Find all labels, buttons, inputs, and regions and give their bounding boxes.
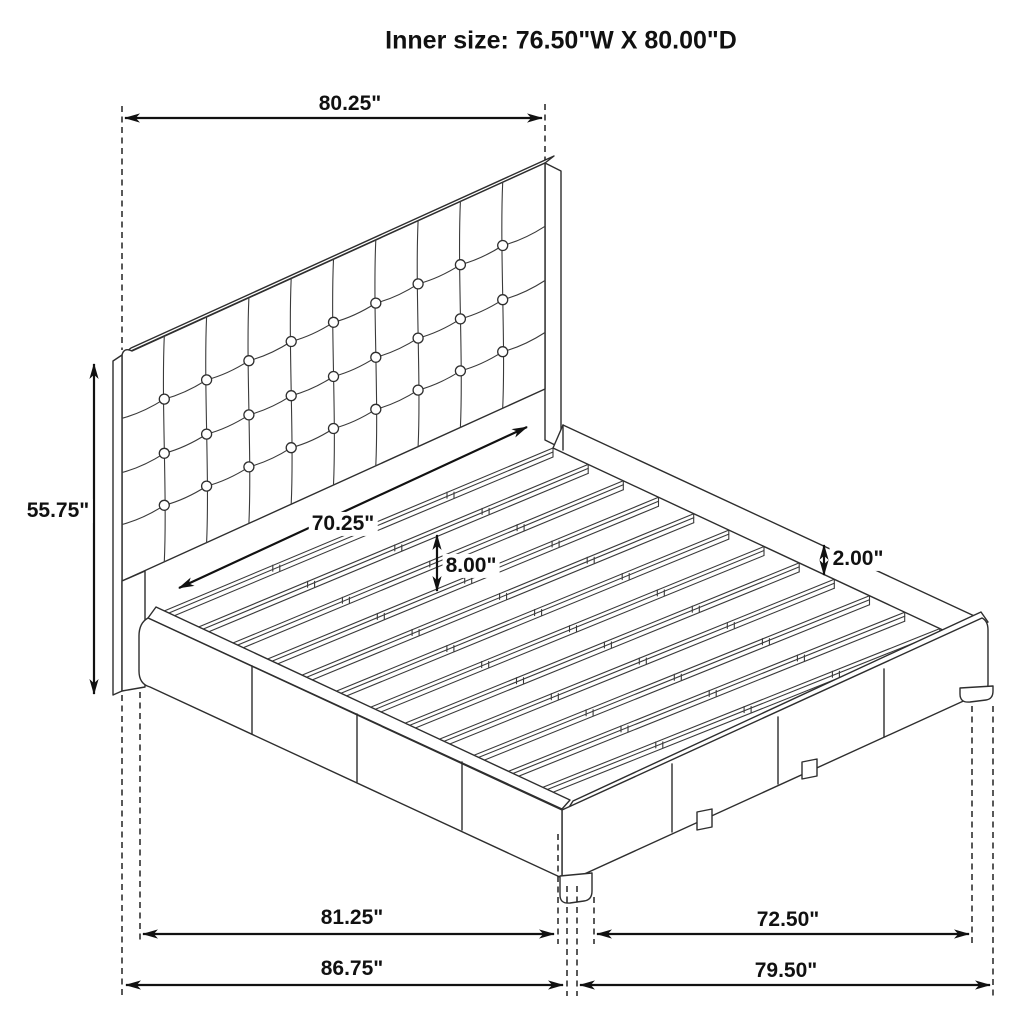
dim-label-base-width-inner: 81.25": [318, 906, 387, 930]
tuft-button: [455, 366, 465, 376]
tuft-button: [413, 385, 423, 395]
tuft-button: [329, 372, 339, 382]
tuft-button: [244, 356, 254, 366]
diagram-title: Inner size: 76.50"W X 80.00"D: [385, 27, 737, 55]
tuft-button: [244, 410, 254, 420]
front-corner-leg: [560, 873, 592, 903]
tuft-button: [455, 314, 465, 324]
dim-label-platform-height: 8.00": [443, 554, 500, 578]
tuft-button: [286, 443, 296, 453]
tuft-button: [202, 429, 212, 439]
dim-label-headboard-height: 55.75": [24, 499, 93, 523]
tuft-button: [159, 394, 169, 404]
dim-label-base-depth-inner: 72.50": [754, 908, 823, 932]
middle-leg-1: [697, 809, 712, 830]
tuft-button: [413, 279, 423, 289]
slat-edge: [400, 572, 800, 735]
tuft-button: [286, 391, 296, 401]
tuft-button: [202, 481, 212, 491]
tuft-button: [371, 404, 381, 414]
left-rail-face: [139, 618, 562, 878]
tuft-button: [498, 347, 508, 357]
tuft-button: [371, 298, 381, 308]
tuft-button: [244, 462, 254, 472]
tuft-button: [371, 352, 381, 362]
slat-edge: [330, 539, 729, 703]
headboard: [113, 156, 561, 695]
tuft-button: [159, 500, 169, 510]
tuft-button: [329, 424, 339, 434]
tuft-button: [202, 375, 212, 385]
headboard-left-side: [113, 355, 122, 695]
bed-dimension-diagram: Inner size: 76.50"W X 80.00"D 80.25" 55.…: [0, 0, 1024, 1024]
dim-label-slat-span: 70.25": [309, 512, 378, 536]
tuft-button: [498, 241, 508, 251]
slat-edge: [365, 556, 764, 719]
tuft-button: [286, 337, 296, 347]
tuft-button: [413, 333, 423, 343]
dim-label-headboard-width: 80.25": [316, 92, 385, 116]
figure-svg: [0, 0, 1024, 1024]
right-corner-leg: [960, 686, 993, 702]
middle-leg-2: [802, 759, 817, 779]
dim-label-slat-lip: 2.00": [830, 547, 887, 571]
slat-edge: [226, 490, 623, 655]
right-rail-top-band: [553, 425, 983, 645]
headboard-right-post: [545, 163, 561, 448]
tuft-button: [498, 295, 508, 305]
foot-rail-face: [562, 618, 988, 881]
dim-label-overall-width: 86.75": [318, 957, 387, 981]
dim-label-overall-depth: 79.50": [752, 959, 821, 983]
slat-edge: [296, 523, 694, 687]
tuft-button: [159, 448, 169, 458]
tuft-button: [455, 260, 465, 270]
tuft-button: [329, 317, 339, 327]
